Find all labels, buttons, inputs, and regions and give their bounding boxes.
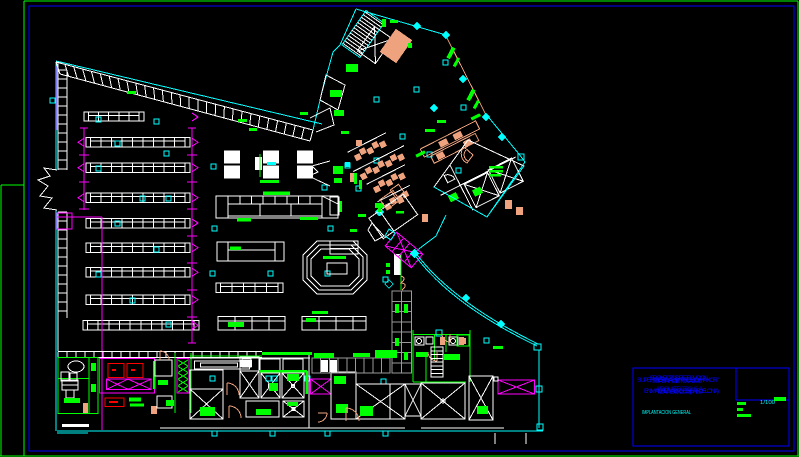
svg-text:MARZO 2001 N.8: MARZO 2001 N.8 xyxy=(658,389,702,396)
svg-text:1/100: 1/100 xyxy=(760,400,775,406)
svg-text:IMPLANTACION GENERAL: IMPLANTACION GENERAL xyxy=(642,410,691,416)
svg-text:SUPERFICIE TOTAL M2: SUPERFICIE TOTAL M2 xyxy=(652,378,702,385)
